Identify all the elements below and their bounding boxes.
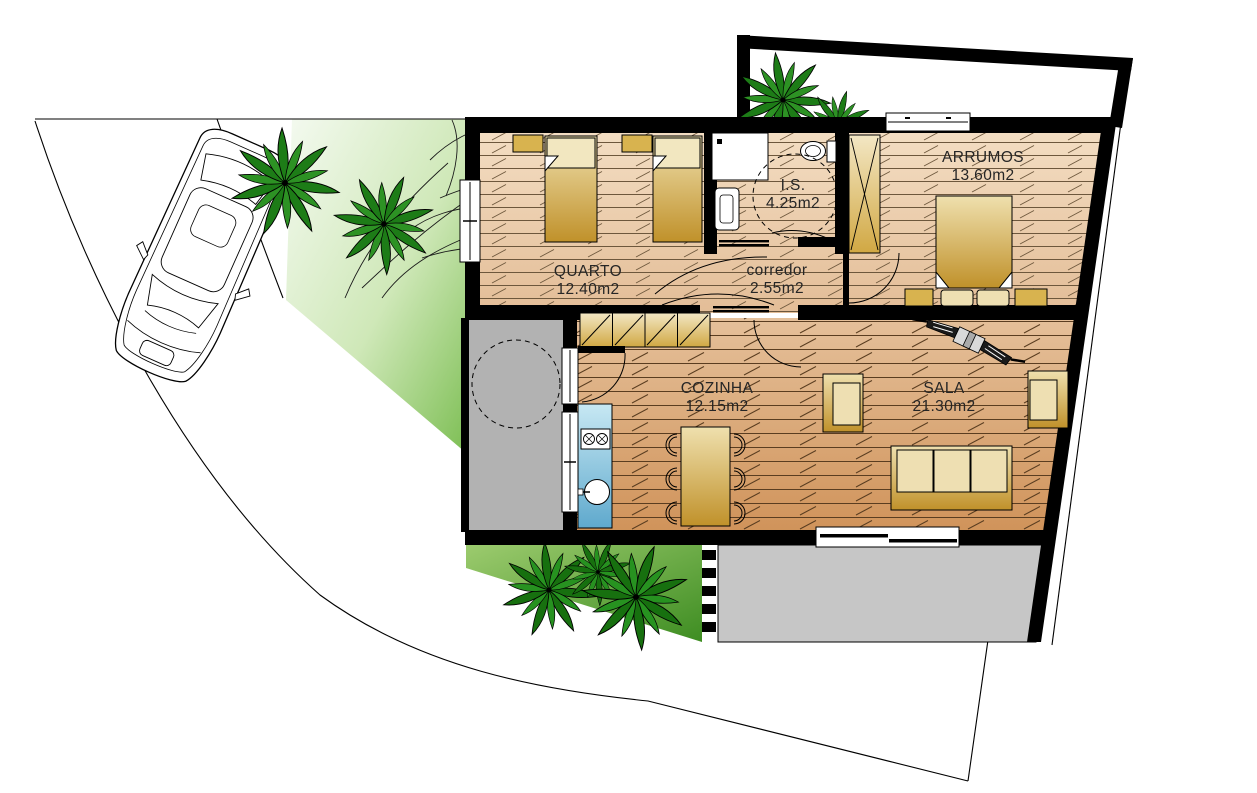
wall-patio-kitchen-stub3: [563, 512, 577, 532]
patio-entry-door-opening: [562, 348, 578, 404]
room-label-is: I.S.: [781, 177, 806, 194]
stove-icon: [581, 429, 610, 449]
bed-pillow: [655, 138, 700, 168]
window-top: [886, 113, 970, 131]
room-area-cozinha: 12.15m2: [685, 398, 748, 415]
nightstand: [905, 289, 933, 306]
wardrobe: [849, 135, 880, 253]
wall-left-lower: [461, 318, 469, 532]
room-area-is: 4.25m2: [766, 195, 820, 212]
upper-cabinets: [580, 313, 710, 347]
window-left: [460, 180, 480, 262]
sofa-cushion: [971, 450, 1007, 492]
armchair-cushion: [1030, 380, 1057, 420]
wall-bottom: [465, 530, 1056, 545]
bed-pillow: [547, 138, 595, 168]
floor-plan-page: QUARTO 12.40m2 I.S. 4.25m2 corredor 2.55…: [0, 0, 1257, 793]
wall-patio-kitchen-stub2: [563, 404, 577, 412]
sofa-cushion: [934, 450, 970, 492]
room-label-arrumos: ARRUMOS: [942, 149, 1024, 166]
room-label-corredor: corredor: [747, 262, 808, 279]
wall-patio-kitchen-stub1: [563, 318, 577, 348]
entrance-patio: [468, 318, 563, 532]
armchair-cushion: [833, 383, 860, 425]
window-patio-kitchen: [562, 412, 578, 512]
bed-double: [936, 196, 1012, 288]
floor-plan-canvas: QUARTO 12.40m2 I.S. 4.25m2 corredor 2.55…: [0, 0, 1257, 793]
room-label-cozinha: COZINHA: [681, 380, 754, 397]
sliding-door-sala: [816, 527, 959, 547]
nightstand: [513, 135, 543, 152]
sofa-cushion: [897, 450, 933, 492]
room-area-quarto: 12.40m2: [556, 281, 619, 298]
room-label-quarto: QUARTO: [554, 263, 622, 280]
wall-is-bottom-stub-left: [704, 237, 717, 247]
back-deck: [718, 545, 1048, 642]
room-area-arrumos: 13.60m2: [951, 167, 1014, 184]
dining-table: [681, 427, 730, 526]
bed-pillow: [977, 290, 1009, 306]
bed-pillow: [941, 290, 973, 306]
room-label-sala: SALA: [923, 380, 964, 397]
shower-drain: [717, 139, 722, 144]
wall-d-right: [798, 305, 1087, 320]
wall-top: [465, 117, 1117, 133]
kitchen-counter: [578, 404, 612, 528]
washbasin-cabinet: [715, 188, 739, 230]
toilet-tank: [827, 141, 836, 162]
nightstand: [1015, 289, 1047, 306]
nightstand: [622, 135, 652, 152]
wall-is-arrumos: [835, 133, 849, 254]
room-area-corredor: 2.55m2: [750, 280, 804, 297]
room-area-sala: 21.30m2: [912, 398, 975, 415]
